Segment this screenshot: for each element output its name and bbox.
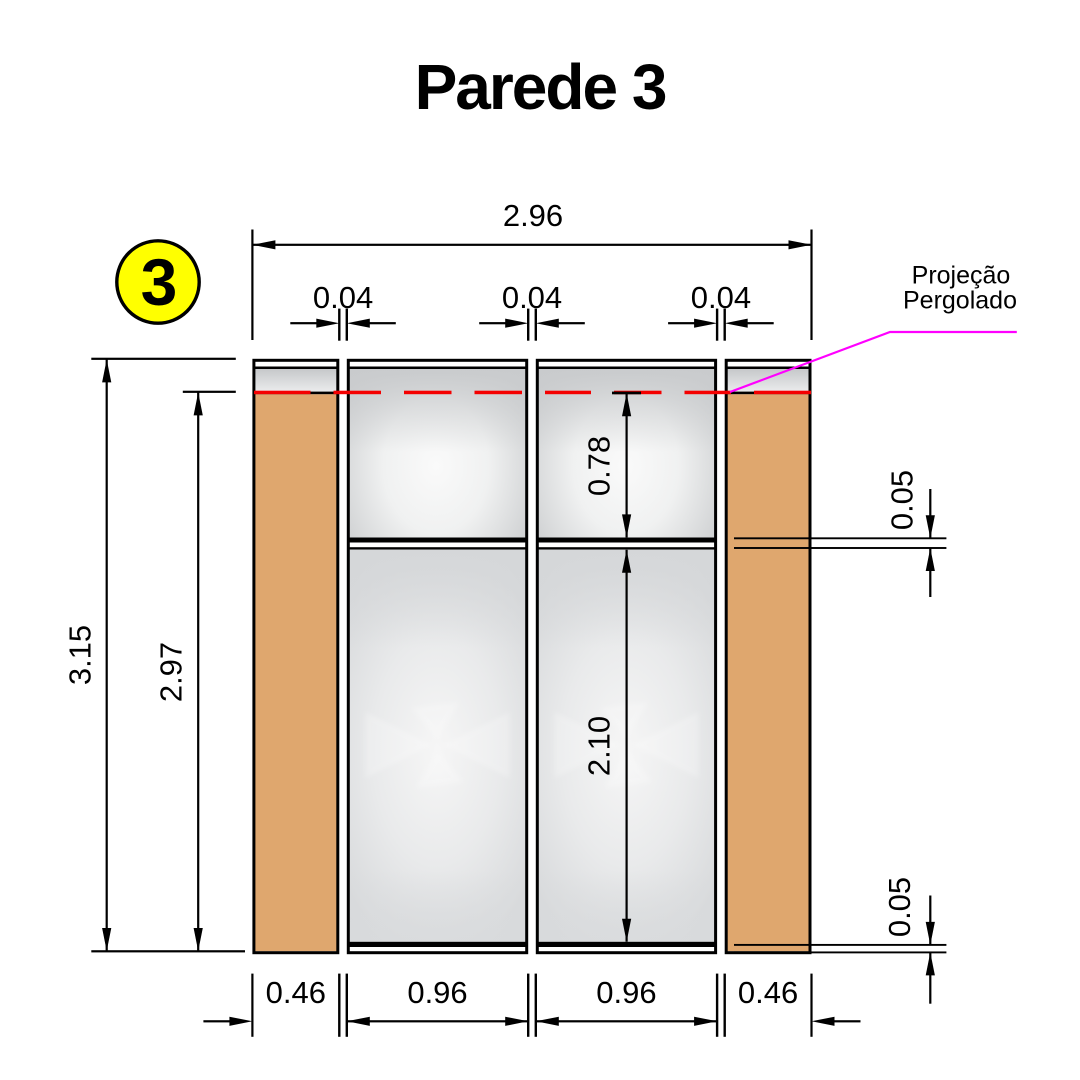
svg-text:0.46: 0.46	[266, 975, 326, 1010]
svg-text:3: 3	[141, 245, 178, 319]
svg-text:0.05: 0.05	[882, 877, 917, 937]
svg-text:Pergolado: Pergolado	[903, 287, 1017, 315]
svg-text:Parede 3: Parede 3	[415, 51, 666, 123]
svg-text:0.96: 0.96	[407, 975, 467, 1010]
svg-text:3.15: 3.15	[62, 625, 97, 685]
svg-text:2.97: 2.97	[153, 642, 188, 702]
svg-text:0.04: 0.04	[502, 280, 562, 315]
svg-text:0.46: 0.46	[738, 975, 798, 1010]
svg-text:0.04: 0.04	[313, 280, 373, 315]
svg-text:0.04: 0.04	[691, 280, 751, 315]
svg-text:2.10: 2.10	[581, 716, 616, 776]
svg-text:0.96: 0.96	[596, 975, 656, 1010]
svg-text:0.05: 0.05	[884, 470, 919, 530]
svg-text:Projeção: Projeção	[912, 262, 1011, 290]
svg-text:2.96: 2.96	[503, 198, 563, 233]
svg-text:0.78: 0.78	[581, 436, 616, 496]
